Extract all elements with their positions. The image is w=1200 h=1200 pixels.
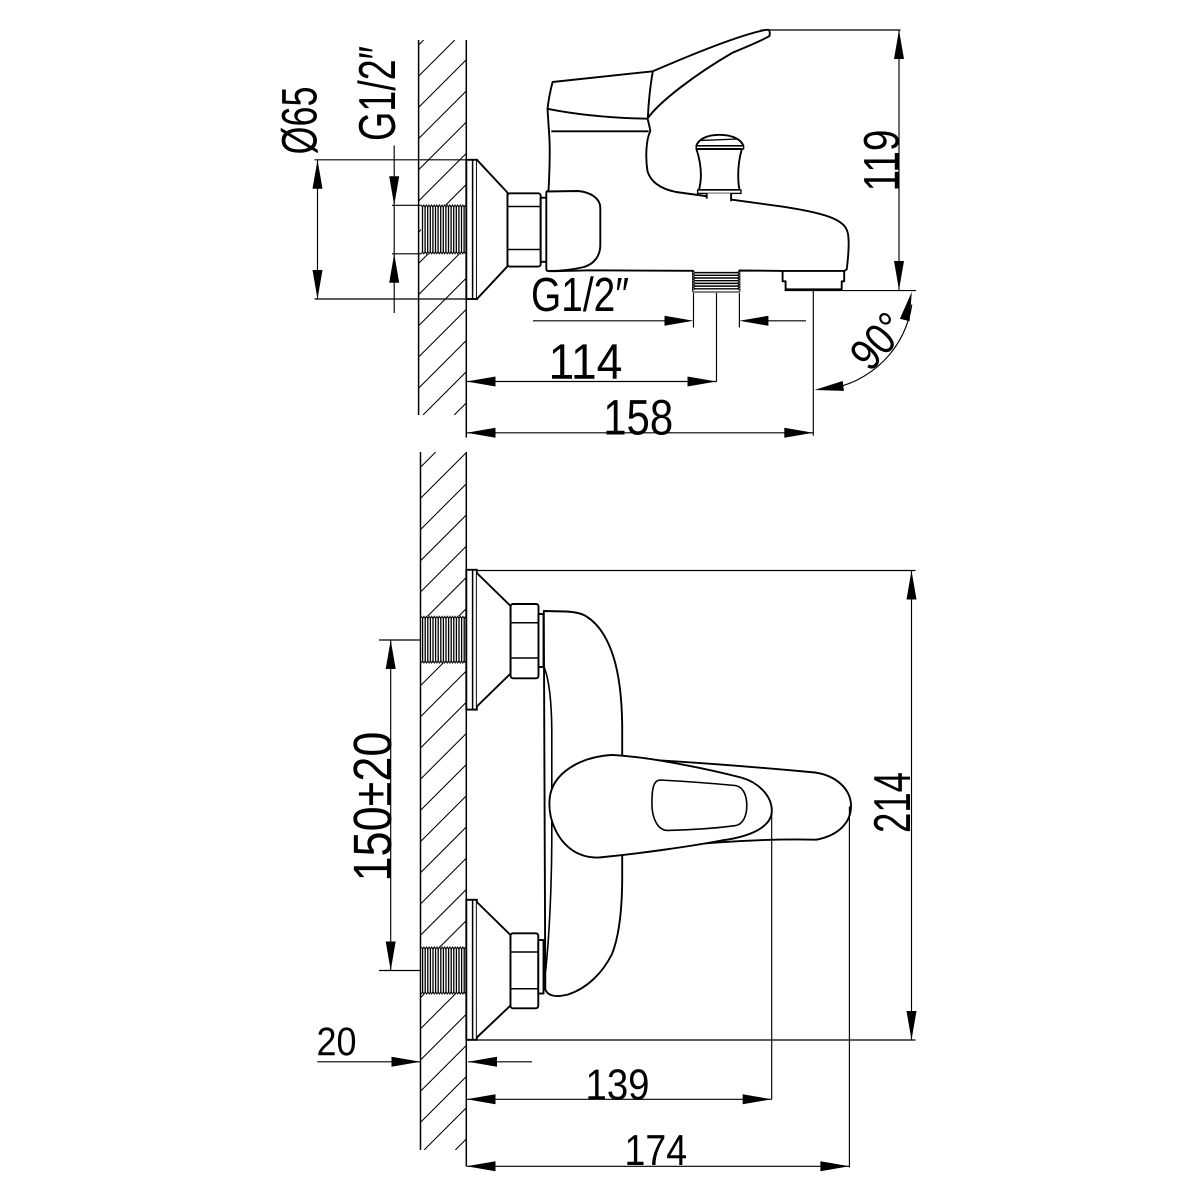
svg-text:214: 214	[864, 772, 922, 833]
svg-text:114: 114	[548, 334, 622, 390]
svg-text:Ø65: Ø65	[272, 87, 328, 155]
svg-text:20: 20	[316, 1020, 356, 1064]
svg-text:174: 174	[625, 1127, 688, 1175]
svg-text:158: 158	[603, 389, 673, 445]
svg-text:139: 139	[585, 1061, 649, 1109]
svg-text:G1/2″: G1/2″	[349, 46, 407, 141]
svg-text:119: 119	[854, 130, 910, 192]
svg-text:150±20: 150±20	[343, 732, 403, 882]
svg-text:G1/2″: G1/2″	[531, 269, 629, 322]
